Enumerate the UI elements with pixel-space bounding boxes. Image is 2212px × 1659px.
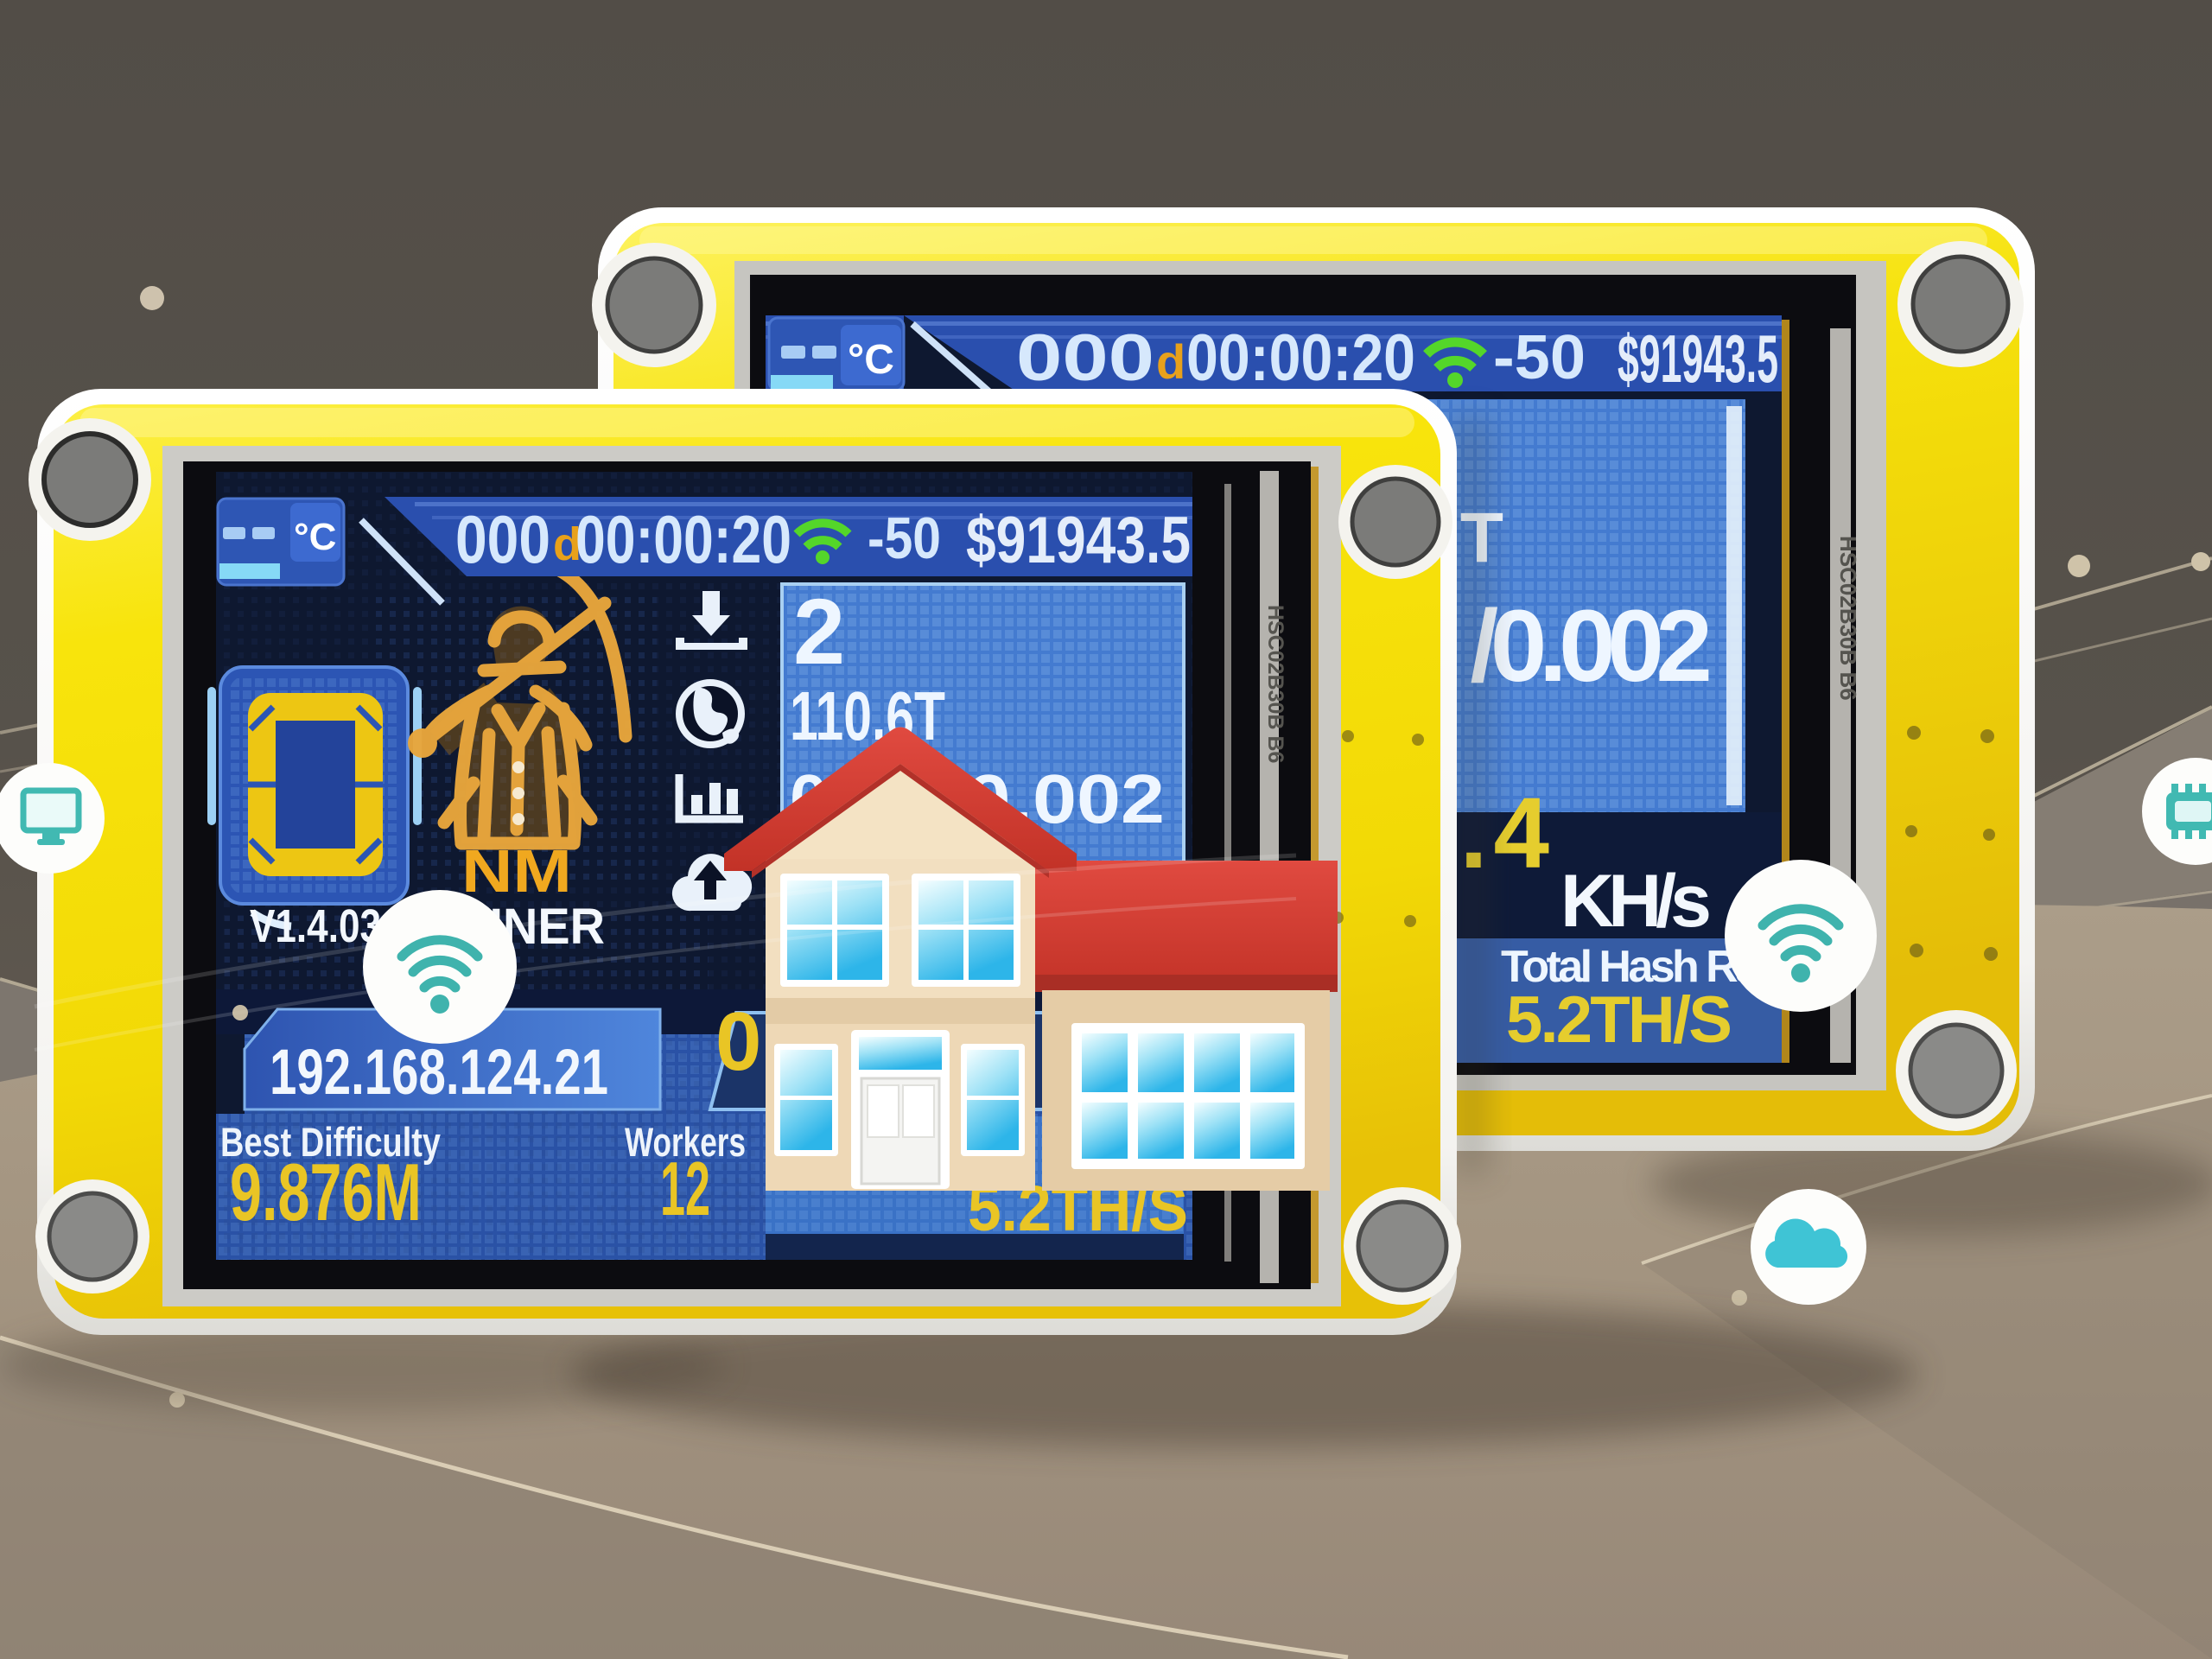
svg-text:d: d — [1156, 334, 1185, 389]
svg-text:$91943.5: $91943.5 — [966, 504, 1191, 577]
svg-text:000: 000 — [1016, 321, 1154, 395]
svg-text:000: 000 — [455, 501, 550, 577]
svg-text:192.168.124.21: 192.168.124.21 — [270, 1036, 608, 1108]
svg-text:-50: -50 — [868, 505, 941, 571]
svg-text:9.876M: 9.876M — [230, 1147, 422, 1237]
svg-text:2: 2 — [793, 579, 845, 683]
svg-text:HSC02B30B B6: HSC02B30B B6 — [1263, 605, 1287, 763]
svg-text:12: 12 — [660, 1146, 710, 1231]
svg-text:-50: -50 — [1493, 323, 1586, 392]
svg-text:°C: °C — [848, 337, 894, 383]
svg-text:$91943.5: $91943.5 — [1618, 321, 1778, 397]
svg-text:NM: NM — [461, 837, 572, 905]
svg-text:°C: °C — [294, 516, 336, 558]
svg-text:V1.4.03: V1.4.03 — [250, 900, 381, 952]
svg-text:5.2TH/S: 5.2TH/S — [1506, 983, 1732, 1057]
svg-text:00:00:20: 00:00:20 — [575, 501, 791, 577]
svg-text:HSC02B30B B6: HSC02B30B B6 — [1835, 536, 1861, 701]
svg-text:00:00:20: 00:00:20 — [1186, 321, 1415, 395]
svg-text:KH/s: KH/s — [1560, 860, 1712, 943]
svg-text:0: 0 — [715, 995, 761, 1088]
